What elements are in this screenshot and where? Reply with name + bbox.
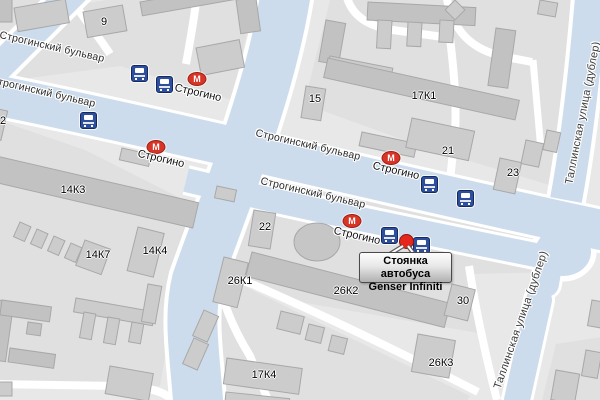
callout-genser-infiniti[interactable]: Стоянка автобуса Genser Infiniti <box>359 252 452 283</box>
building-label: 30 <box>457 295 469 307</box>
callout-line1: Стоянка автобуса <box>360 255 451 281</box>
metro-station-label: Строгино <box>332 225 381 247</box>
bus-stop-icon[interactable] <box>421 176 438 193</box>
building-label: 26К1 <box>228 275 253 287</box>
building-label: 23 <box>507 167 519 179</box>
map-overlays: Строгинский бульварСтрогинский бульварСт… <box>0 0 600 400</box>
building-label: 2 <box>0 115 6 127</box>
bus-stop-icon[interactable] <box>80 112 97 129</box>
building-label: 14К4 <box>143 245 168 257</box>
building-label: 14К3 <box>61 184 86 196</box>
bus-stop-icon[interactable] <box>457 190 474 207</box>
building-label: 26К3 <box>429 357 454 369</box>
bus-stop-icon[interactable] <box>131 65 148 82</box>
map-canvas[interactable]: Строгинский бульварСтрогинский бульварСт… <box>0 0 600 400</box>
road-label: Таллинская улица (дублер) <box>492 249 551 390</box>
callout-line2: Genser Infiniti <box>360 281 451 294</box>
building-label: 26К2 <box>334 285 359 297</box>
metro-station-icon[interactable]: М <box>188 72 207 86</box>
building-label: 17К1 <box>412 90 437 102</box>
building-label: 9 <box>101 16 107 28</box>
building-label: 15 <box>309 93 321 105</box>
metro-station-icon[interactable]: М <box>343 214 362 228</box>
building-label: 17К4 <box>252 369 277 381</box>
road-label: Строгинский бульвар <box>0 74 97 110</box>
building-label: 22 <box>259 221 271 233</box>
road-label: Строгинский бульвар <box>0 29 106 65</box>
building-label: 14К7 <box>86 249 111 261</box>
building-label: 21 <box>442 145 454 157</box>
bus-stop-icon[interactable] <box>156 76 173 93</box>
road-label: Таллинская улица (дублер) <box>563 41 600 186</box>
road-label: Строгинский бульвар <box>259 175 366 211</box>
road-label: Строгинский бульвар <box>254 127 361 163</box>
